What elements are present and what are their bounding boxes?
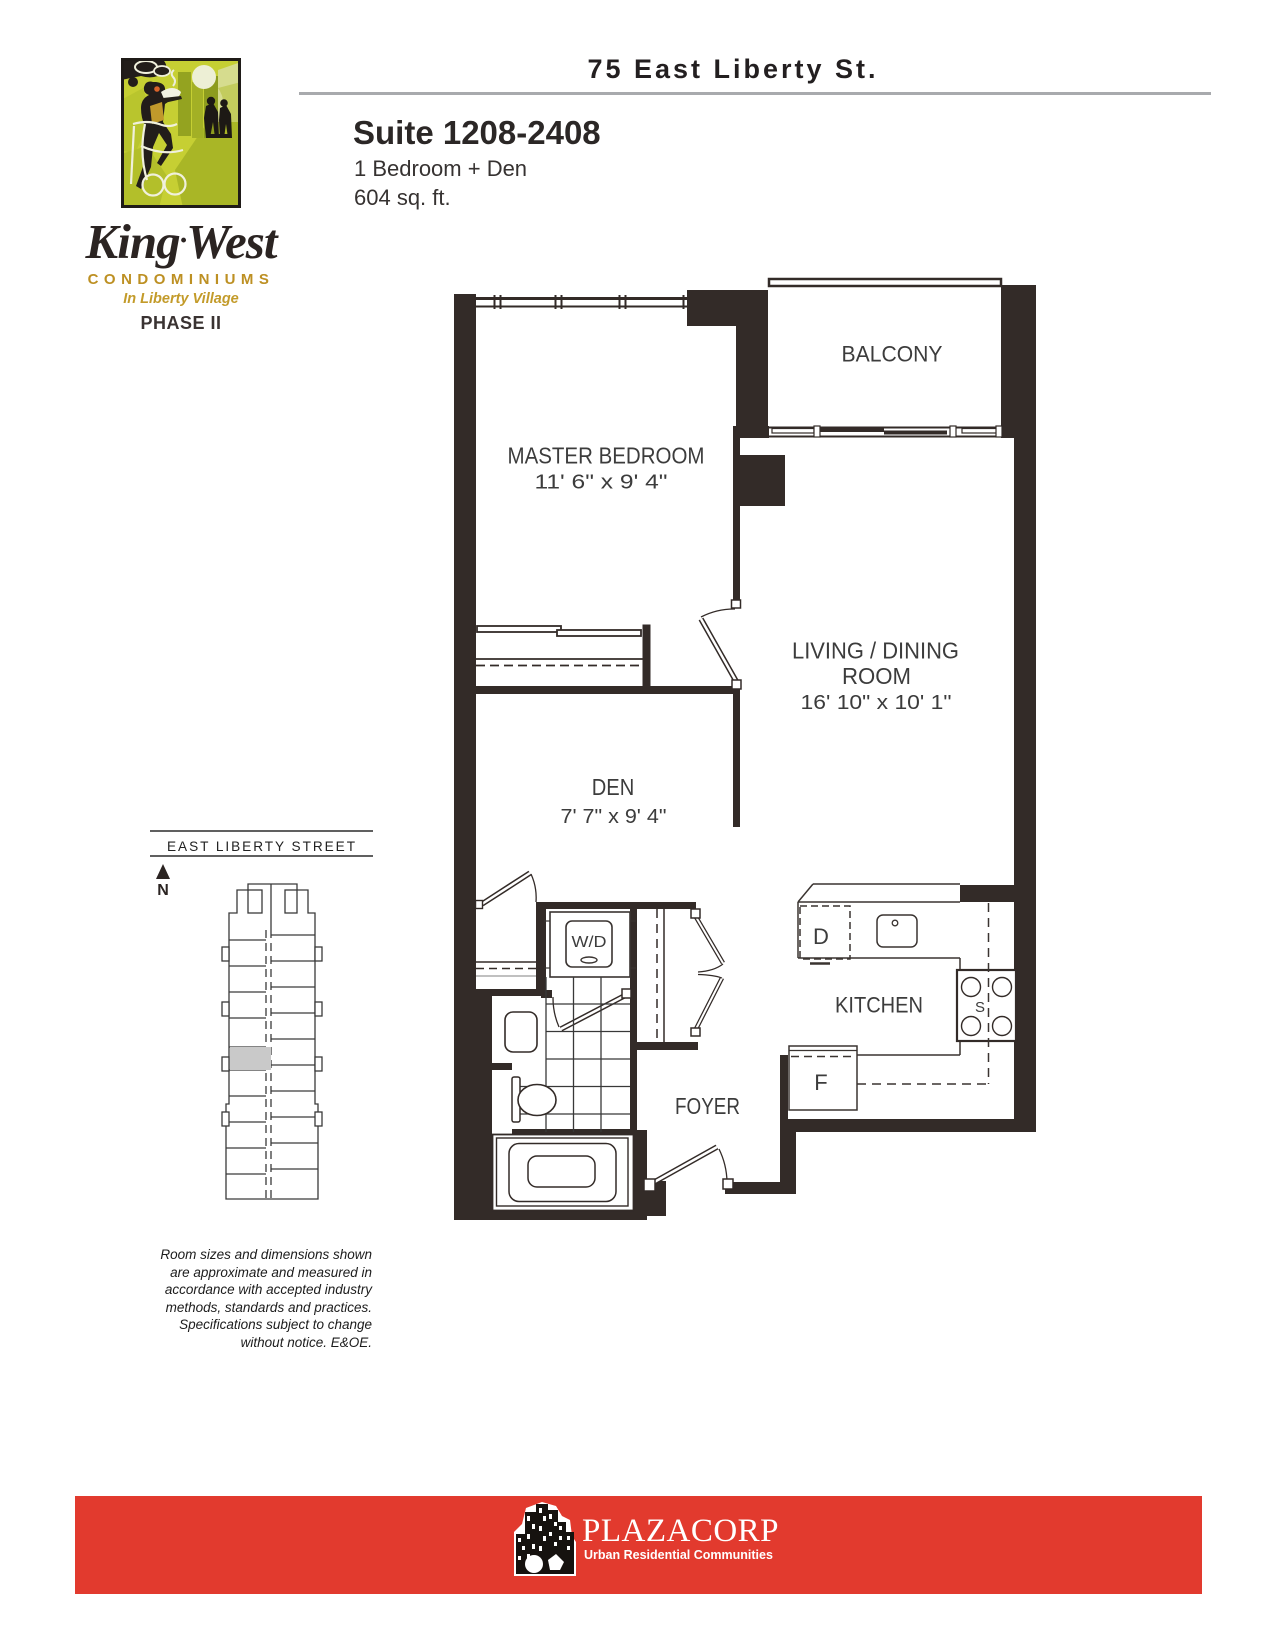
svg-text:LIVING / DINING: LIVING / DINING: [792, 638, 959, 664]
svg-text:D: D: [813, 924, 829, 949]
svg-text:11' 6" x 9' 4": 11' 6" x 9' 4": [535, 472, 668, 494]
svg-text:F: F: [814, 1070, 827, 1095]
svg-text:S: S: [975, 999, 985, 1016]
svg-text:W/D: W/D: [572, 934, 607, 951]
svg-text:16' 10" x 10' 1": 16' 10" x 10' 1": [801, 692, 952, 714]
svg-text:EAST LIBERTY STREET: EAST LIBERTY STREET: [167, 838, 357, 854]
svg-text:DEN: DEN: [592, 774, 635, 800]
svg-text:FOYER: FOYER: [675, 1093, 740, 1119]
svg-text:KITCHEN: KITCHEN: [835, 993, 923, 1018]
svg-text:ROOM: ROOM: [842, 663, 911, 689]
svg-text:N: N: [157, 882, 169, 899]
svg-text:BALCONY: BALCONY: [842, 342, 943, 367]
svg-text:MASTER BEDROOM: MASTER BEDROOM: [508, 443, 705, 469]
svg-text:7' 7" x 9' 4": 7' 7" x 9' 4": [561, 806, 667, 828]
